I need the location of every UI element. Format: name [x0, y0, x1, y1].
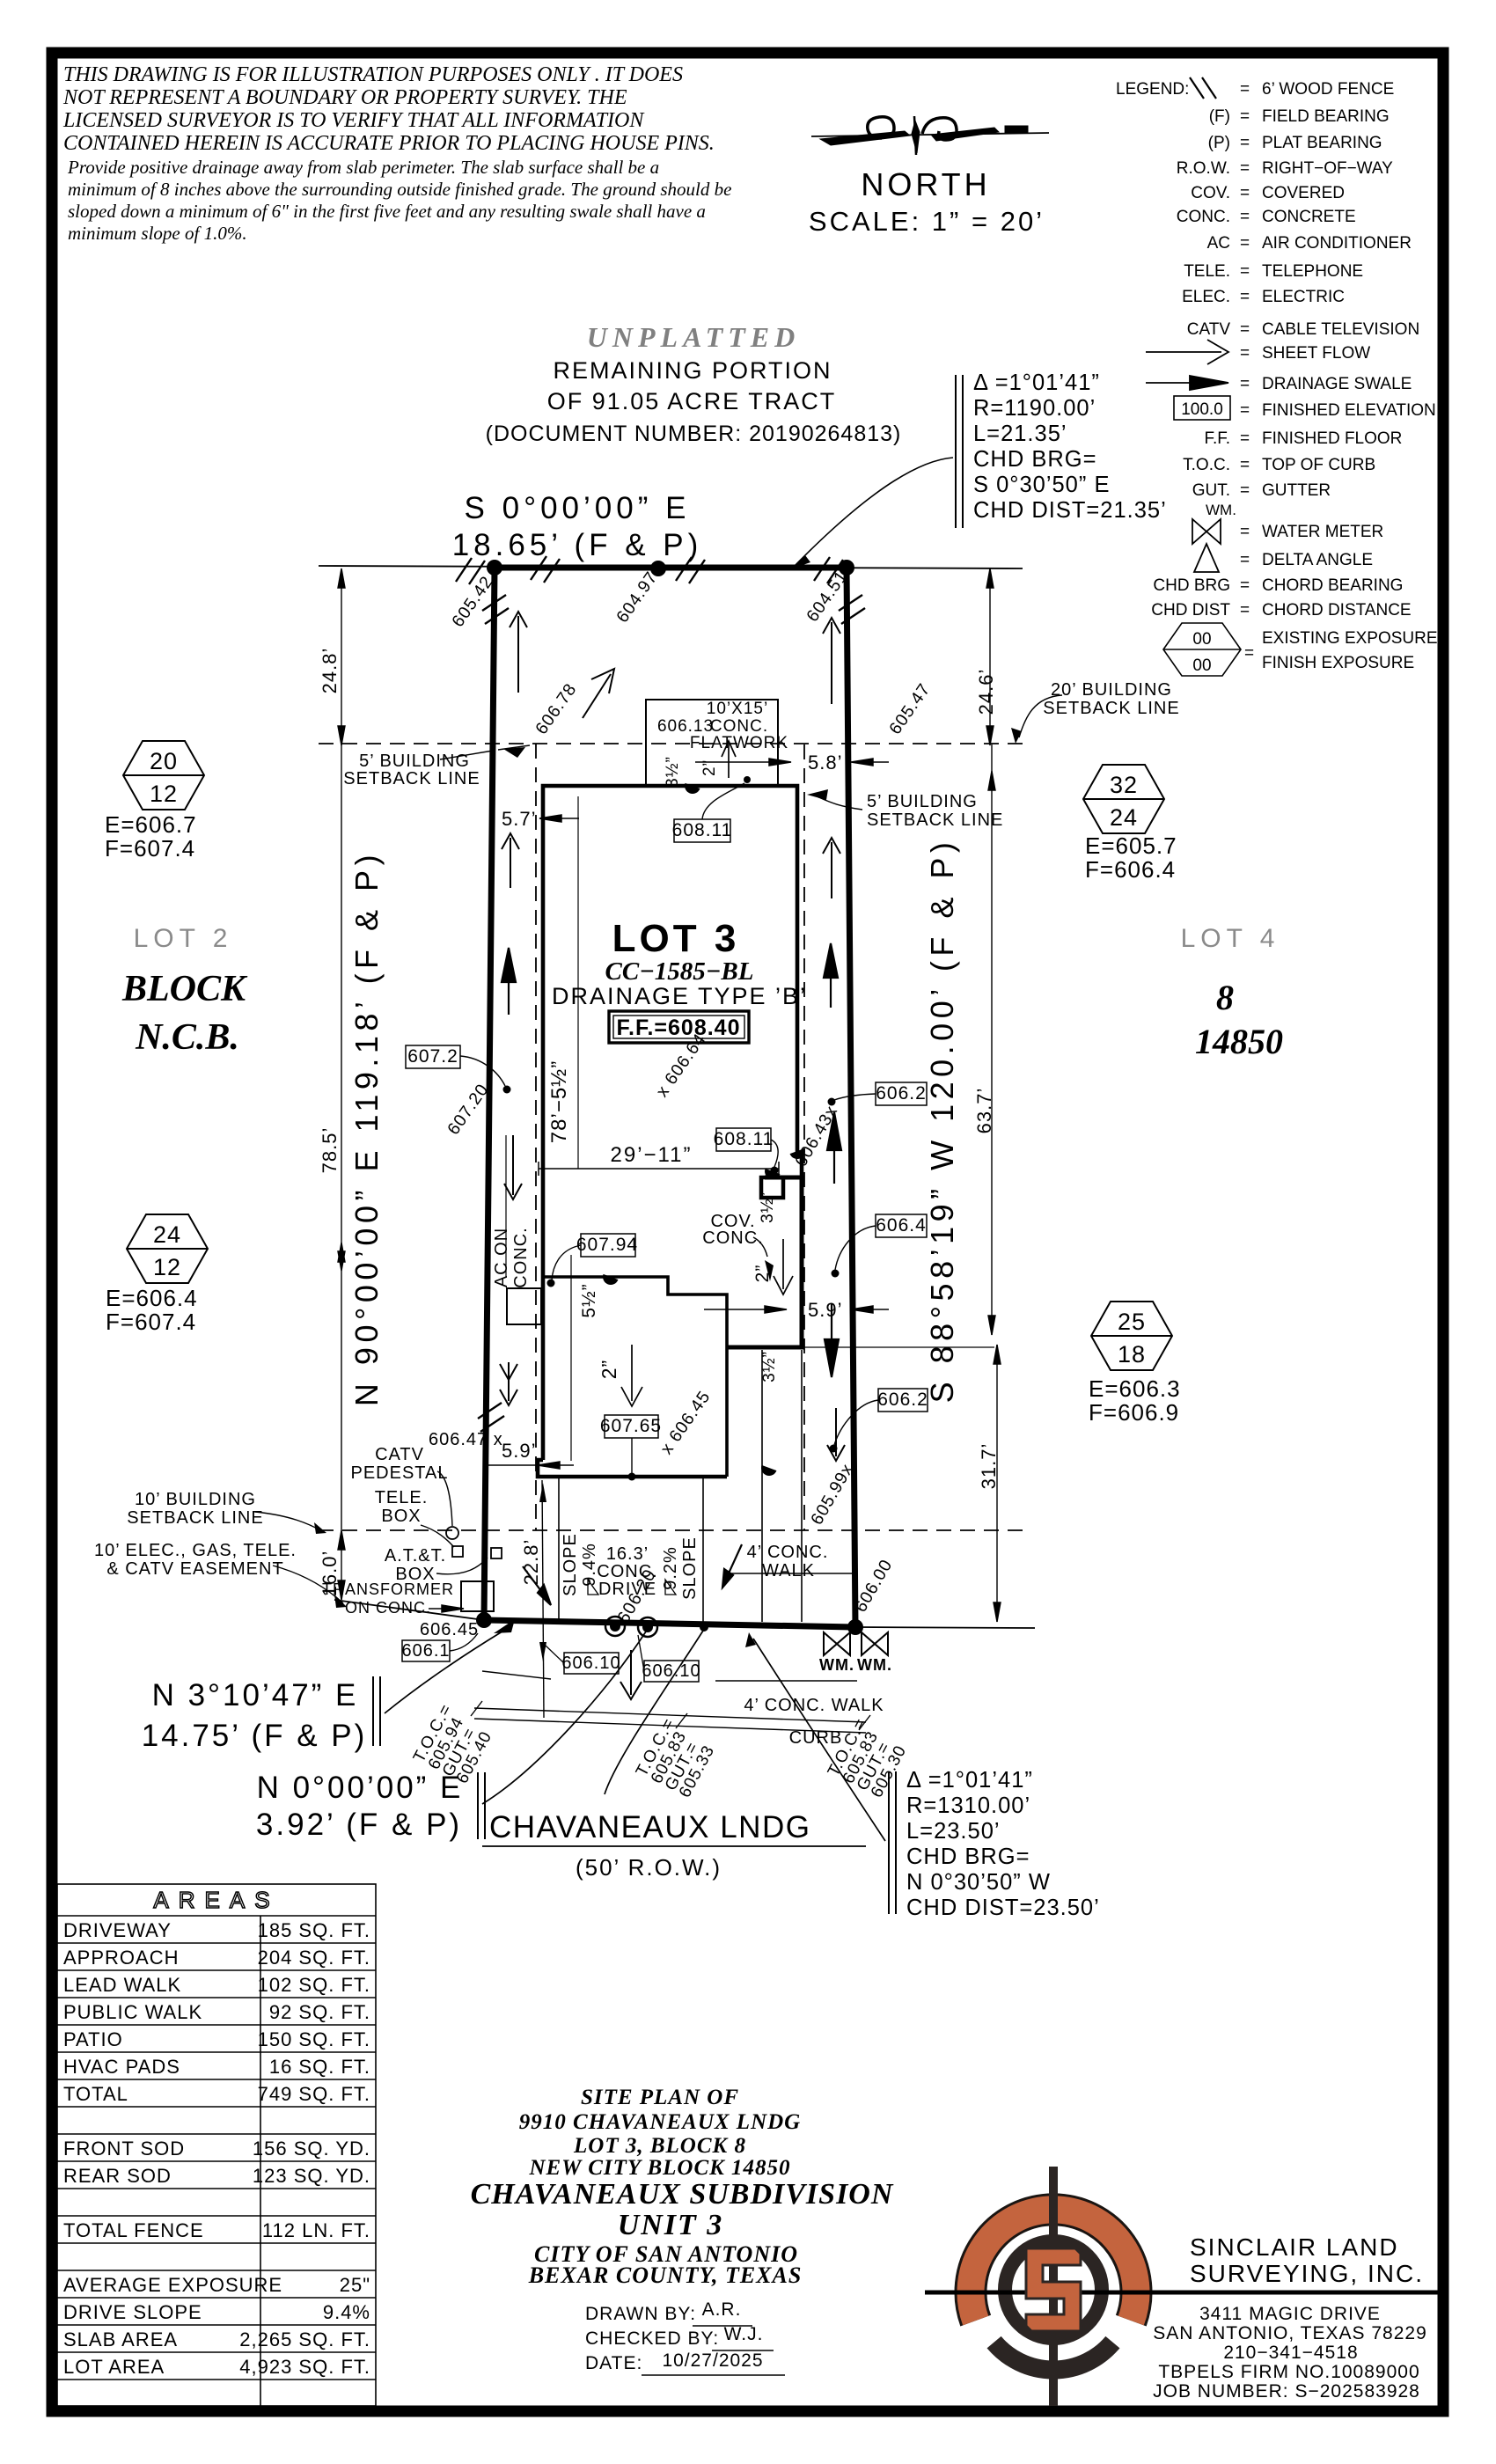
svg-text:185 SQ. FT.: 185 SQ. FT. — [258, 1919, 370, 1941]
svg-text:SETBACK LINE: SETBACK LINE — [343, 769, 480, 788]
svg-text:A.R.: A.R. — [702, 2299, 742, 2320]
svg-text:COVERED: COVERED — [1262, 184, 1345, 202]
svg-text:606.45: 606.45 — [420, 1620, 479, 1639]
svg-text:=: = — [1240, 576, 1250, 595]
svg-text:RIGHT−OF−WAY: RIGHT−OF−WAY — [1262, 159, 1393, 178]
svg-text:CHORD DISTANCE: CHORD DISTANCE — [1262, 601, 1412, 620]
svg-text:GUT.: GUT. — [1192, 481, 1230, 500]
svg-text:5.7’: 5.7’ — [502, 808, 536, 830]
svg-text:14.75’ (F & P): 14.75’ (F & P) — [142, 1719, 368, 1753]
svg-text:10/27/2025: 10/27/2025 — [662, 2350, 763, 2371]
svg-text:E=606.7: E=606.7 — [105, 811, 197, 838]
svg-text:5’ BUILDING: 5’ BUILDING — [867, 792, 978, 811]
svg-text:PLAT BEARING: PLAT BEARING — [1262, 134, 1382, 152]
svg-text:63.7’: 63.7’ — [973, 1088, 995, 1134]
svg-text:32: 32 — [1110, 772, 1138, 798]
svg-text:CHORD BEARING: CHORD BEARING — [1262, 576, 1403, 595]
svg-text:SETBACK LINE: SETBACK LINE — [867, 810, 1003, 830]
svg-text:=: = — [1240, 401, 1250, 420]
svg-text:SLOPE: SLOPE — [561, 1533, 580, 1596]
svg-text:31.7’: 31.7’ — [978, 1443, 1000, 1490]
svg-text:606.2: 606.2 — [877, 1390, 928, 1410]
svg-text:WM.: WM. — [857, 1656, 892, 1674]
svg-text:=: = — [1240, 184, 1250, 202]
svg-text:E=605.7: E=605.7 — [1085, 832, 1177, 859]
svg-text:F.F.=608.40: F.F.=608.40 — [617, 1016, 741, 1040]
svg-text:TOP OF CURB: TOP OF CURB — [1262, 456, 1375, 474]
svg-text:AREAS: AREAS — [153, 1887, 279, 1913]
svg-text:CONC.: CONC. — [710, 717, 768, 736]
svg-text:9.2%: 9.2% — [661, 1546, 680, 1590]
svg-text:REAR SOD: REAR SOD — [63, 2165, 172, 2187]
svg-text:WM.: WM. — [1206, 502, 1236, 518]
svg-text:10’ ELEC., GAS, TELE.: 10’ ELEC., GAS, TELE. — [94, 1541, 297, 1560]
svg-text:9910 CHAVANEAUX LNDG: 9910 CHAVANEAUX LNDG — [519, 2110, 802, 2134]
svg-text:WALK: WALK — [762, 1561, 815, 1580]
svg-text:5½”: 5½” — [579, 1283, 599, 1317]
svg-text:S 88°58’19” W 120.00’ (F & P): S 88°58’19” W 120.00’ (F & P) — [924, 838, 960, 1404]
svg-text:WM.: WM. — [819, 1656, 854, 1674]
svg-text:L=23.50’: L=23.50’ — [906, 1819, 1001, 1844]
svg-text:CHECKED BY:: CHECKED BY: — [585, 2328, 719, 2349]
svg-text:12: 12 — [150, 781, 178, 807]
svg-text:=: = — [1240, 523, 1250, 541]
svg-text:24.6’: 24.6’ — [975, 669, 997, 715]
svg-text:E=606.4: E=606.4 — [106, 1285, 198, 1311]
svg-text:Δ =1°01’41”: Δ =1°01’41” — [906, 1768, 1033, 1793]
svg-text:SCALE: 1” = 20’: SCALE: 1” = 20’ — [809, 206, 1045, 237]
svg-text:8: 8 — [1216, 978, 1234, 1017]
svg-text:BEXAR COUNTY, TEXAS: BEXAR COUNTY, TEXAS — [528, 2262, 803, 2288]
svg-text:AIR CONDITIONER: AIR CONDITIONER — [1262, 234, 1412, 253]
svg-text:W.J.: W.J. — [724, 2324, 764, 2344]
svg-text:N 0°00’00” E: N 0°00’00” E — [257, 1771, 464, 1805]
svg-text:(P): (P) — [1208, 134, 1230, 152]
svg-text:123 SQ. YD.: 123 SQ. YD. — [253, 2165, 370, 2187]
svg-text:607.94: 607.94 — [576, 1235, 638, 1255]
svg-text:TELE.: TELE. — [375, 1488, 429, 1507]
svg-text:12: 12 — [153, 1254, 181, 1280]
svg-text:156 SQ. YD.: 156 SQ. YD. — [253, 2138, 370, 2160]
svg-text:APPROACH: APPROACH — [63, 1947, 179, 1969]
svg-text:CHD DIST: CHD DIST — [1151, 601, 1230, 620]
svg-text:F=607.4: F=607.4 — [106, 1309, 196, 1335]
svg-text:2”: 2” — [598, 1360, 620, 1379]
svg-text:4’ CONC. WALK: 4’ CONC. WALK — [744, 1696, 884, 1715]
svg-text:606.47 x: 606.47 x — [429, 1430, 503, 1449]
svg-text:DATE:: DATE: — [585, 2353, 642, 2373]
svg-text:SINCLAIR LAND: SINCLAIR LAND — [1190, 2233, 1399, 2261]
svg-text:LOT AREA: LOT AREA — [63, 2356, 165, 2378]
svg-text:EXISTING EXPOSURE: EXISTING EXPOSURE — [1262, 629, 1438, 648]
svg-text:749 SQ. FT.: 749 SQ. FT. — [258, 2083, 370, 2105]
svg-text:HVAC PADS: HVAC PADS — [63, 2056, 180, 2078]
svg-text:CHD BRG=: CHD BRG= — [906, 1844, 1030, 1869]
svg-text:R.O.W.: R.O.W. — [1177, 159, 1230, 178]
svg-text:22.8’: 22.8’ — [520, 1539, 542, 1586]
svg-text:=: = — [1240, 551, 1250, 569]
svg-text:JOB NUMBER: S−202583928: JOB NUMBER: S−202583928 — [1153, 2381, 1420, 2402]
svg-text:SHEET FLOW: SHEET FLOW — [1262, 344, 1370, 363]
svg-text:F=607.4: F=607.4 — [105, 835, 195, 862]
svg-text:=: = — [1244, 644, 1254, 663]
svg-text:=: = — [1240, 320, 1250, 339]
svg-text:LOT 2: LOT 2 — [134, 924, 233, 953]
svg-text:TBPELS FIRM NO.10089000: TBPELS FIRM NO.10089000 — [1158, 2362, 1419, 2382]
svg-text:DRIVEWAY: DRIVEWAY — [63, 1919, 172, 1941]
svg-text:F=606.9: F=606.9 — [1089, 1399, 1179, 1426]
svg-text:SLAB AREA: SLAB AREA — [63, 2328, 178, 2350]
svg-text:20: 20 — [150, 748, 178, 774]
svg-text:CABLE TELEVISION: CABLE TELEVISION — [1262, 320, 1419, 339]
svg-text:AC ON: AC ON — [492, 1228, 511, 1287]
svg-text:CHD BRG: CHD BRG — [1153, 576, 1230, 595]
svg-text:GUTTER: GUTTER — [1262, 481, 1331, 500]
svg-text:24: 24 — [153, 1221, 181, 1248]
svg-text:3½”: 3½” — [664, 756, 682, 788]
svg-text:CC−1585−BL: CC−1585−BL — [605, 957, 754, 986]
svg-text:92 SQ. FT.: 92 SQ. FT. — [269, 2001, 370, 2023]
svg-text:N.C.B.: N.C.B. — [135, 1017, 239, 1058]
svg-text:24.8’: 24.8’ — [319, 648, 341, 694]
svg-text:=: = — [1240, 344, 1250, 363]
svg-text:LICENSED SURVEYOR IS TO VERIFY: LICENSED SURVEYOR IS TO VERIFY THAT ALL … — [62, 109, 645, 132]
svg-text:18: 18 — [1118, 1341, 1146, 1368]
svg-text:6’ WOOD FENCE: 6’ WOOD FENCE — [1262, 80, 1394, 99]
svg-text:BLOCK: BLOCK — [121, 969, 248, 1009]
svg-text:SAN ANTONIO, TEXAS 78229: SAN ANTONIO, TEXAS 78229 — [1153, 2323, 1427, 2343]
svg-text:3½”: 3½” — [760, 1351, 779, 1382]
svg-text:AVERAGE EXPOSURE: AVERAGE EXPOSURE — [63, 2274, 282, 2296]
svg-text:TELEPHONE: TELEPHONE — [1262, 262, 1363, 281]
svg-text:CHD BRG=: CHD BRG= — [973, 447, 1096, 472]
svg-text:3.92’ (F & P): 3.92’ (F & P) — [256, 1808, 462, 1842]
svg-text:=: = — [1240, 159, 1250, 178]
svg-text:608.11: 608.11 — [672, 820, 733, 840]
svg-text:16.3’: 16.3’ — [606, 1544, 649, 1564]
svg-text:606.4: 606.4 — [876, 1215, 927, 1236]
svg-text:10’ BUILDING: 10’ BUILDING — [135, 1490, 256, 1509]
svg-text:16.0’: 16.0’ — [319, 1551, 341, 1597]
svg-text:20’ BUILDING: 20’ BUILDING — [1051, 680, 1172, 700]
svg-text:OF 91.05 ACRE TRACT: OF 91.05 ACRE TRACT — [547, 388, 837, 414]
svg-text:18.65’ (F & P): 18.65’ (F & P) — [452, 528, 703, 562]
svg-text:F.F.: F.F. — [1204, 429, 1230, 448]
svg-text:4’ CONC.: 4’ CONC. — [747, 1543, 829, 1562]
svg-text:FINISHED ELEVATION: FINISHED ELEVATION — [1262, 401, 1436, 420]
svg-text:TELE.: TELE. — [1184, 262, 1230, 281]
svg-text:112 LN. FT.: 112 LN. FT. — [262, 2219, 370, 2241]
svg-text:607.65: 607.65 — [600, 1416, 662, 1436]
svg-text:E=606.3: E=606.3 — [1089, 1375, 1181, 1402]
svg-text:SETBACK LINE: SETBACK LINE — [127, 1508, 263, 1528]
svg-text:UNIT 3: UNIT 3 — [618, 2209, 724, 2241]
svg-text:25": 25" — [340, 2274, 370, 2296]
svg-text:REMAINING PORTION: REMAINING PORTION — [553, 357, 832, 384]
svg-text:5’ BUILDING: 5’ BUILDING — [359, 752, 470, 771]
svg-text:A.T.&T.: A.T.&T. — [385, 1546, 446, 1566]
svg-text:NORTH: NORTH — [861, 166, 990, 202]
svg-text:CHAVANEAUX SUBDIVISION: CHAVANEAUX SUBDIVISION — [471, 2178, 894, 2211]
svg-text:5.9’: 5.9’ — [502, 1440, 536, 1462]
svg-text:S 0°00’00” E: S 0°00’00” E — [465, 491, 691, 525]
svg-text:SETBACK LINE: SETBACK LINE — [1043, 699, 1179, 718]
svg-text:78.5’: 78.5’ — [319, 1127, 341, 1174]
svg-text:LOT 3, BLOCK 8: LOT 3, BLOCK 8 — [573, 2134, 746, 2158]
svg-text:DRAINAGE TYPE ’B’: DRAINAGE TYPE ’B’ — [552, 983, 807, 1009]
svg-text:CHAVANEAUX LNDG: CHAVANEAUX LNDG — [489, 1810, 810, 1844]
svg-text:TOTAL FENCE: TOTAL FENCE — [63, 2219, 204, 2241]
svg-text:F=606.4: F=606.4 — [1085, 856, 1176, 883]
svg-text:CHD DIST=23.50’: CHD DIST=23.50’ — [906, 1896, 1100, 1920]
svg-text:204 SQ. FT.: 204 SQ. FT. — [258, 1947, 370, 1969]
svg-text:606.2: 606.2 — [876, 1083, 927, 1104]
svg-text:SITE PLAN OF: SITE PLAN OF — [581, 2086, 739, 2109]
svg-text:CATV: CATV — [375, 1445, 424, 1464]
svg-text:CURB: CURB — [789, 1728, 843, 1748]
svg-text:minimum slope of 1.0%.: minimum slope of 1.0%. — [68, 223, 247, 244]
svg-text:=: = — [1240, 375, 1250, 393]
svg-text:CATV: CATV — [1187, 320, 1231, 339]
svg-text:FINISHED FLOOR: FINISHED FLOOR — [1262, 429, 1402, 448]
svg-text:N 0°30’50” W: N 0°30’50” W — [906, 1870, 1051, 1895]
svg-text:DRIVE SLOPE: DRIVE SLOPE — [63, 2301, 202, 2323]
svg-text:606.10: 606.10 — [561, 1654, 620, 1673]
svg-text:N 3°10’47” E: N 3°10’47” E — [152, 1678, 359, 1712]
svg-text:ELECTRIC: ELECTRIC — [1262, 288, 1345, 306]
svg-text:FLATWORK: FLATWORK — [690, 734, 788, 752]
svg-text:ELEC.: ELEC. — [1182, 288, 1230, 306]
svg-text:PUBLIC WALK: PUBLIC WALK — [63, 2001, 202, 2023]
svg-text:THIS DRAWING IS FOR ILLUSTRATI: THIS DRAWING IS FOR ILLUSTRATION PURPOSE… — [63, 63, 683, 86]
svg-text:sloped down a minimum of 6" in: sloped down a minimum of 6" in the first… — [68, 201, 706, 222]
svg-text:BOX: BOX — [381, 1507, 421, 1526]
svg-text:=: = — [1240, 234, 1250, 253]
svg-text:100.0: 100.0 — [1181, 400, 1223, 419]
svg-text:N 90°00’00” E 119.18’ (F & P): N 90°00’00” E 119.18’ (F & P) — [348, 850, 385, 1406]
svg-text:14850: 14850 — [1195, 1022, 1283, 1061]
svg-text:LEGEND:: LEGEND: — [1116, 80, 1189, 99]
svg-text:FRONT SOD: FRONT SOD — [63, 2138, 185, 2160]
svg-text:SLOPE: SLOPE — [680, 1536, 700, 1600]
svg-text:DRAWN BY:: DRAWN BY: — [585, 2304, 696, 2324]
svg-text:=: = — [1240, 80, 1250, 99]
svg-text:5.9’: 5.9’ — [808, 1299, 842, 1321]
svg-text:102 SQ. FT.: 102 SQ. FT. — [258, 1974, 370, 1996]
svg-text:LOT 3: LOT 3 — [612, 917, 740, 960]
svg-text:S 0°30’50” E: S 0°30’50” E — [973, 473, 1110, 497]
svg-text:24: 24 — [1110, 804, 1138, 831]
svg-text:PEDESTAL: PEDESTAL — [351, 1463, 449, 1483]
svg-text:LOT 4: LOT 4 — [1181, 924, 1280, 953]
svg-text:WATER METER: WATER METER — [1262, 523, 1383, 541]
svg-text:4,923 SQ. FT.: 4,923 SQ. FT. — [239, 2356, 370, 2378]
svg-text:DRAINAGE SWALE: DRAINAGE SWALE — [1262, 375, 1412, 393]
svg-text:CONTAINED HEREIN IS ACCURATE P: CONTAINED HEREIN IS ACCURATE PRIOR TO PL… — [63, 132, 715, 155]
svg-text:COV.: COV. — [1191, 184, 1230, 202]
svg-text:606.1: 606.1 — [401, 1641, 450, 1661]
svg-text:CHD DIST=21.35’: CHD DIST=21.35’ — [973, 498, 1167, 523]
svg-text:DELTA ANGLE: DELTA ANGLE — [1262, 551, 1373, 569]
svg-text:10’X15’: 10’X15’ — [707, 700, 768, 718]
svg-text:=: = — [1240, 601, 1250, 620]
svg-text:=: = — [1240, 134, 1250, 152]
svg-text:608.11: 608.11 — [714, 1129, 774, 1149]
svg-text:& CATV EASEMENT: & CATV EASEMENT — [106, 1559, 283, 1579]
svg-text:PATIO: PATIO — [63, 2028, 123, 2050]
svg-text:minimum of 8 inches above the: minimum of 8 inches above the surroundin… — [68, 179, 731, 200]
svg-text:9.4%: 9.4% — [323, 2301, 370, 2323]
svg-text:25: 25 — [1118, 1309, 1146, 1335]
svg-text:CONC.: CONC. — [1177, 208, 1230, 226]
svg-text:=: = — [1240, 429, 1250, 448]
svg-text:00: 00 — [1192, 630, 1211, 649]
svg-text:=: = — [1240, 481, 1250, 500]
svg-text:T.O.C.: T.O.C. — [1183, 456, 1230, 474]
svg-text:AC: AC — [1207, 234, 1230, 253]
svg-text:(F): (F) — [1209, 107, 1230, 126]
svg-text:00: 00 — [1192, 656, 1211, 675]
svg-text:FIELD BEARING: FIELD BEARING — [1262, 107, 1390, 126]
svg-text:29’−11”: 29’−11” — [611, 1143, 693, 1167]
svg-text:2,265 SQ. FT.: 2,265 SQ. FT. — [239, 2328, 370, 2350]
svg-text:LEAD WALK: LEAD WALK — [63, 1974, 181, 1996]
svg-text:Δ =1°01’41”: Δ =1°01’41” — [973, 370, 1100, 395]
svg-text:=: = — [1240, 456, 1250, 474]
svg-text:L=21.35’: L=21.35’ — [973, 422, 1067, 446]
svg-text:210−341−4518: 210−341−4518 — [1223, 2343, 1358, 2363]
svg-text:(50’ R.O.W.): (50’ R.O.W.) — [576, 1854, 722, 1881]
svg-text:607.2: 607.2 — [407, 1046, 458, 1067]
svg-text:TOTAL: TOTAL — [63, 2083, 128, 2105]
svg-text:=: = — [1240, 208, 1250, 226]
svg-text:=: = — [1240, 262, 1250, 281]
svg-text:16 SQ. FT.: 16 SQ. FT. — [269, 2056, 370, 2078]
svg-text:3411 MAGIC DRIVE: 3411 MAGIC DRIVE — [1199, 2304, 1381, 2324]
svg-text:(DOCUMENT NUMBER: 20190264813): (DOCUMENT NUMBER: 20190264813) — [486, 422, 902, 446]
svg-text:NEW CITY BLOCK 14850: NEW CITY BLOCK 14850 — [528, 2156, 790, 2180]
svg-text:NOT REPRESENT A BOUNDARY OR PR: NOT REPRESENT A BOUNDARY OR PROPERTY SUR… — [62, 86, 627, 109]
svg-text:5.8’: 5.8’ — [808, 752, 842, 774]
svg-text:SURVEYING, INC.: SURVEYING, INC. — [1190, 2260, 1424, 2287]
svg-text:150 SQ. FT.: 150 SQ. FT. — [258, 2028, 370, 2050]
svg-text:606.13: 606.13 — [657, 717, 714, 736]
svg-text:=: = — [1240, 107, 1250, 126]
svg-text:FINISH EXPOSURE: FINISH EXPOSURE — [1262, 654, 1414, 672]
svg-text:CONCRETE: CONCRETE — [1262, 208, 1356, 226]
svg-text:78’−5½”: 78’−5½” — [547, 1060, 571, 1143]
svg-text:UNPLATTED: UNPLATTED — [587, 321, 800, 353]
svg-text:CONC.: CONC. — [511, 1227, 531, 1287]
svg-text:R=1190.00’: R=1190.00’ — [973, 396, 1096, 421]
svg-text:R=1310.00’: R=1310.00’ — [906, 1793, 1030, 1818]
svg-text:=: = — [1240, 288, 1250, 306]
svg-text:3½”: 3½” — [759, 1192, 777, 1223]
svg-text:Provide positive drainage away: Provide positive drainage away from slab… — [67, 157, 659, 178]
